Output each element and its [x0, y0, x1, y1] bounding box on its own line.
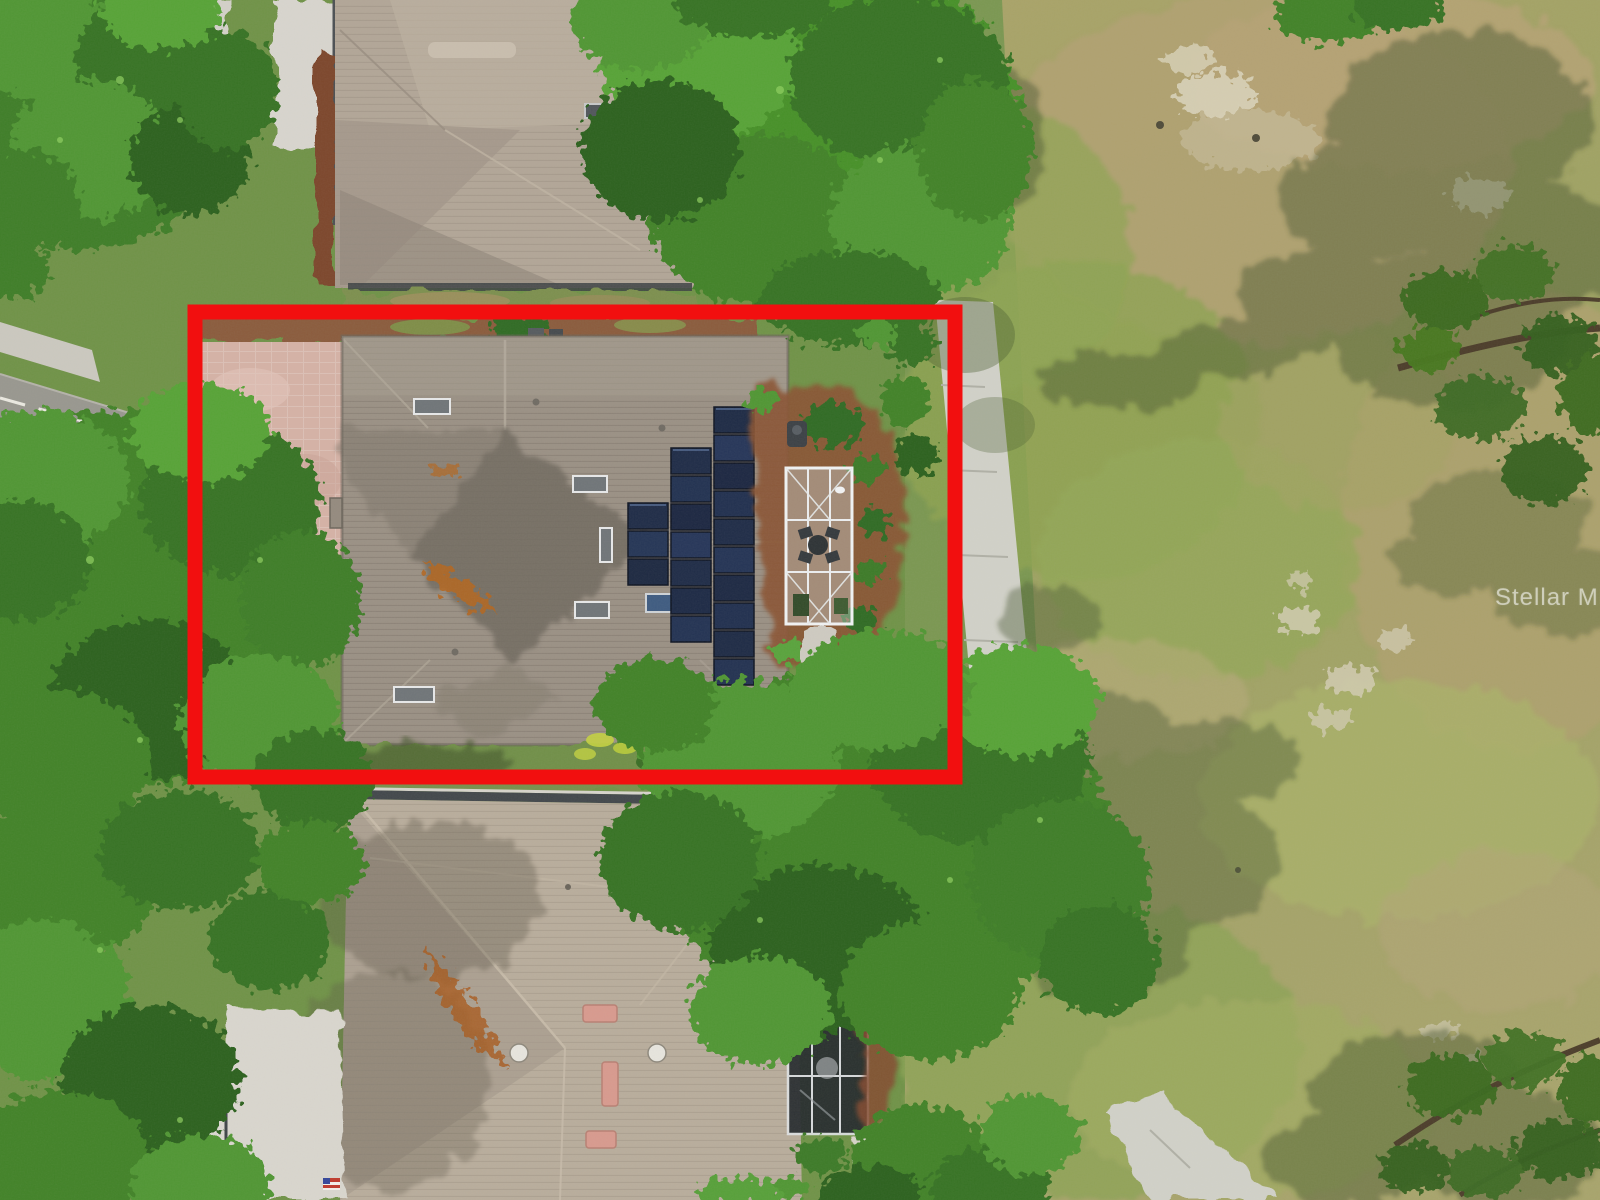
photo-grain: [0, 0, 1600, 1200]
aerial-photo-canvas: [0, 0, 1600, 1200]
aerial-photo: Stellar MLS: [0, 0, 1600, 1200]
